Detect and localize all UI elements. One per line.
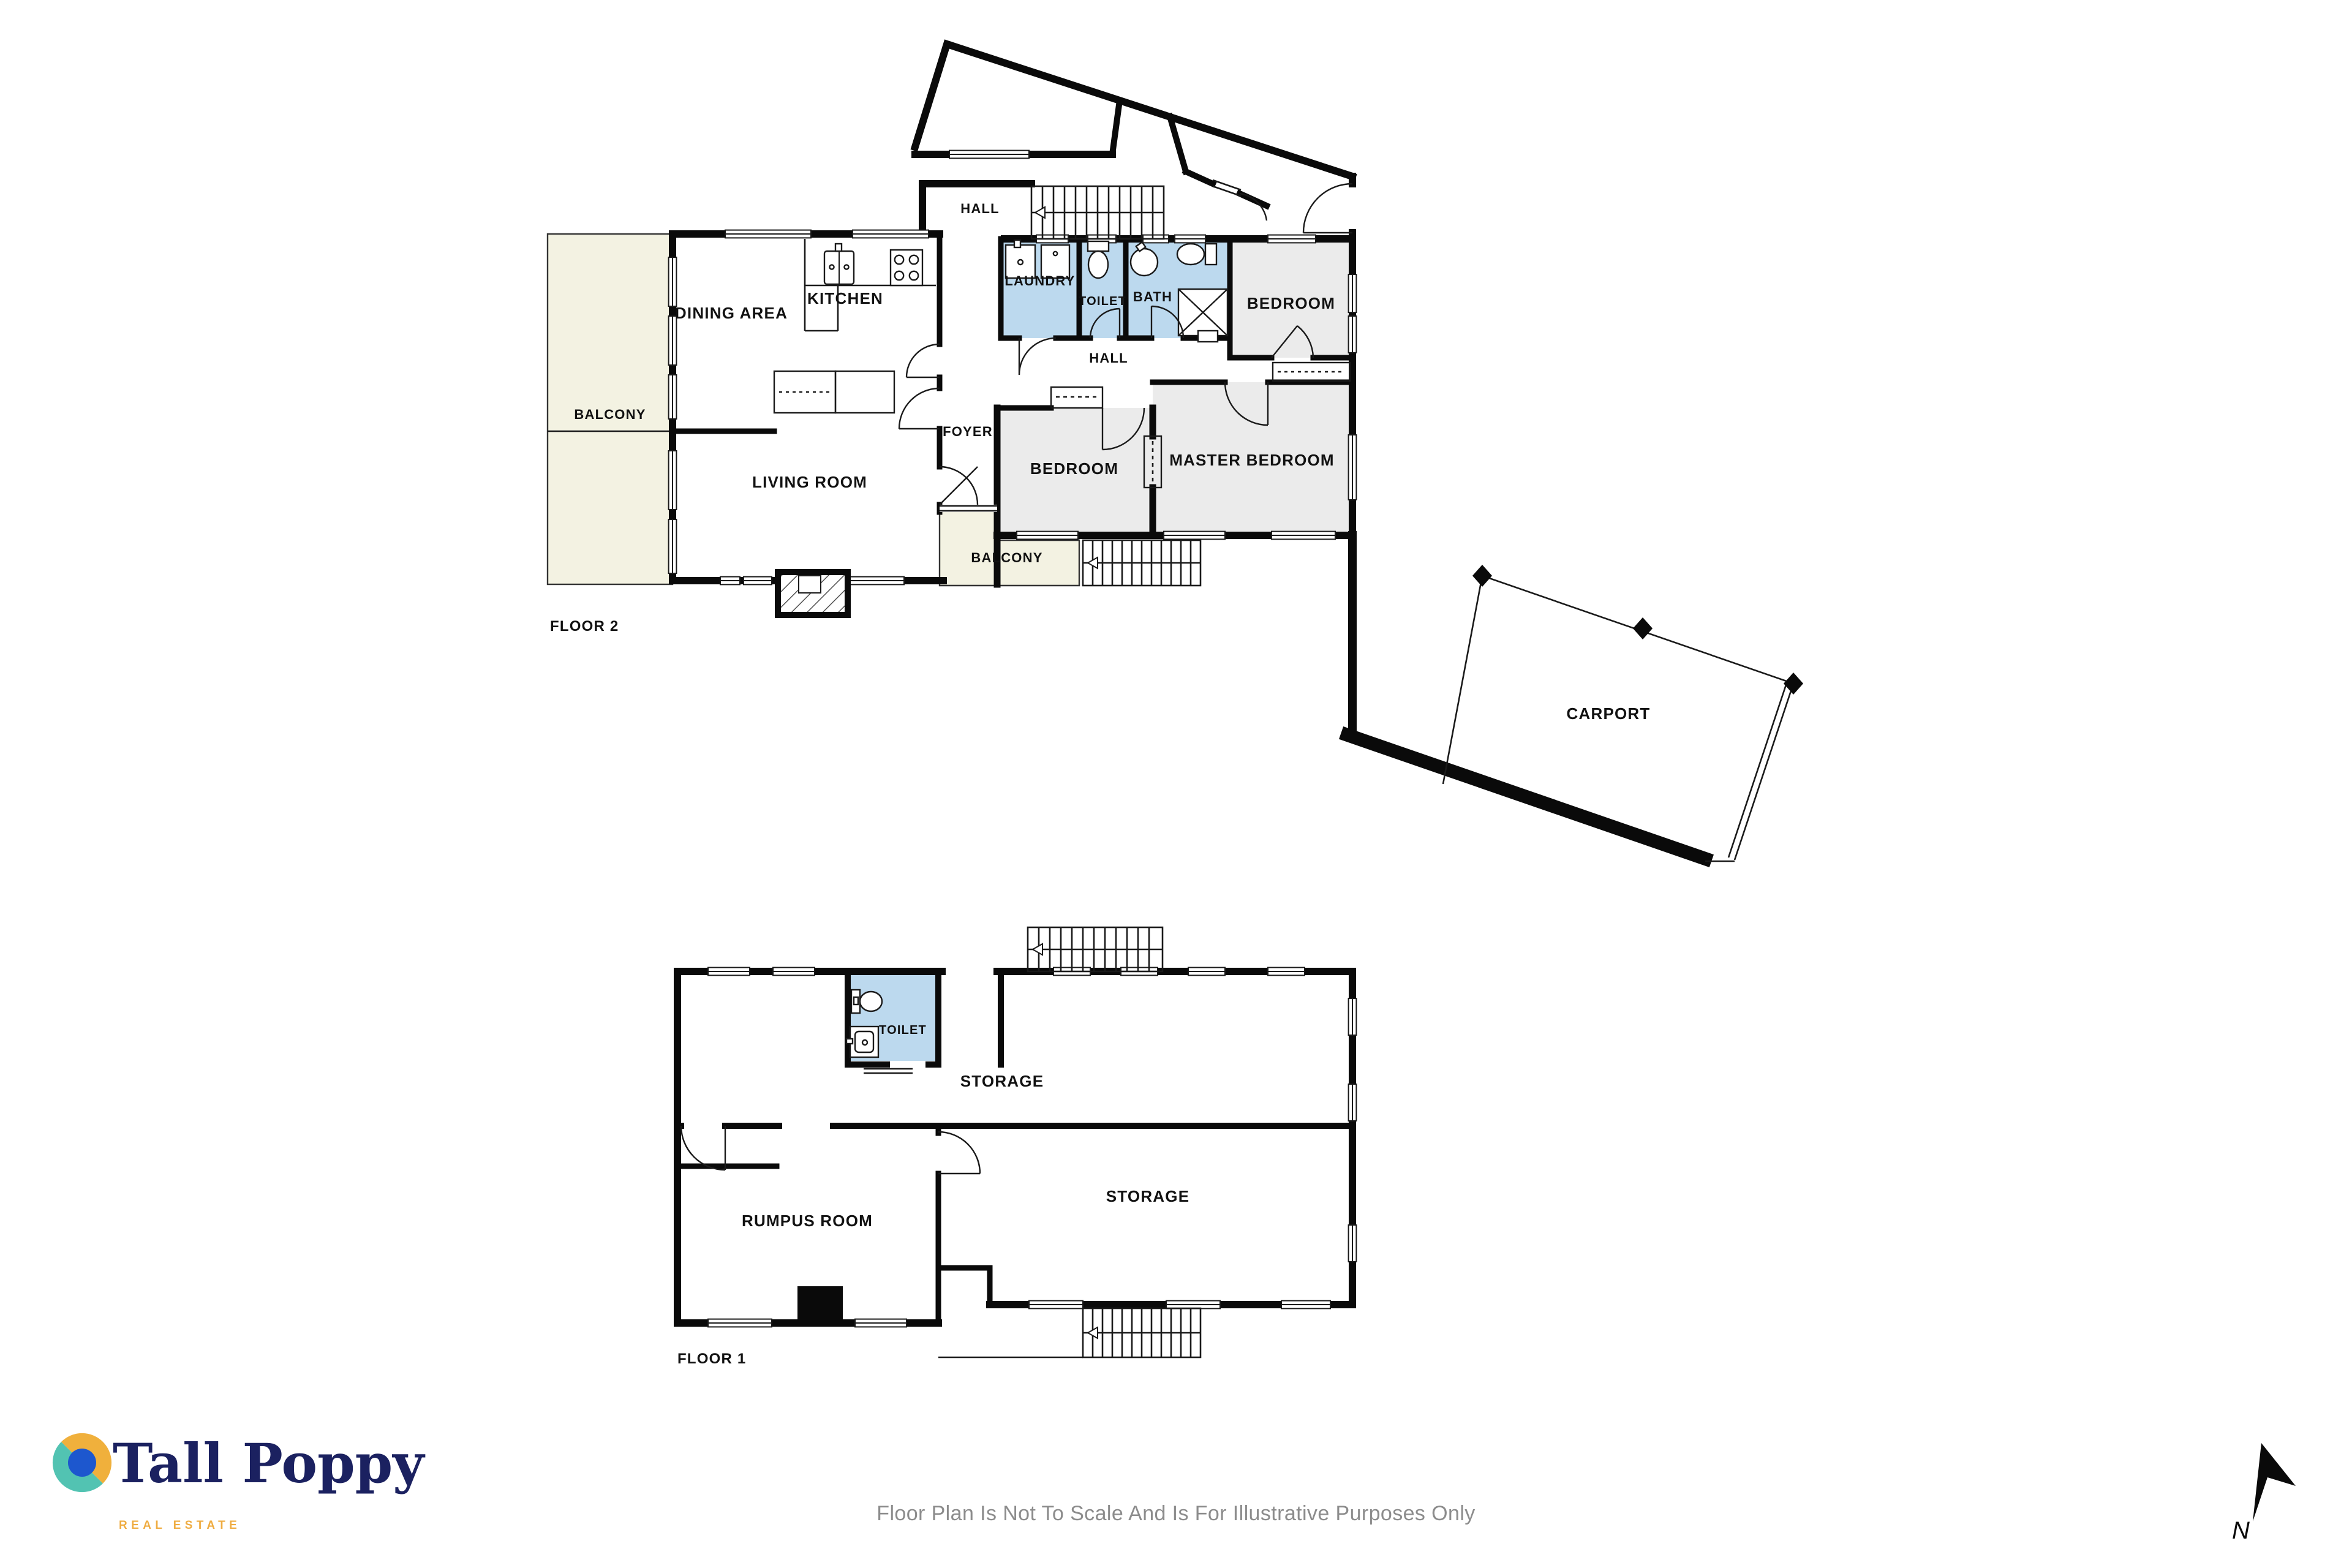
toilet-icon (1205, 244, 1216, 265)
toilet-f2-fixtures (1088, 241, 1109, 278)
label-laundry: LAUNDRY (1005, 273, 1075, 288)
label-storage-upper: STORAGE (960, 1072, 1044, 1090)
label-balcony-lower: BALCONY (971, 550, 1042, 565)
carport-post (1633, 617, 1653, 639)
logo-dot-icon (68, 1449, 96, 1477)
label-storage-lower: STORAGE (1106, 1187, 1190, 1205)
staircase-floor2-upper (1031, 186, 1164, 239)
label-rumpus: RUMPUS ROOM (742, 1212, 873, 1230)
label-bath: BATH (1133, 289, 1172, 304)
brand-tagline: REAL ESTATE (119, 1519, 241, 1532)
staircase-floor2-lower (1083, 540, 1200, 586)
carport-post (1784, 673, 1803, 695)
floor1-walls (677, 971, 1352, 1323)
label-balcony-left: BALCONY (574, 407, 646, 422)
fireplace (797, 1286, 843, 1323)
label-hall: HALL (1089, 350, 1128, 366)
brand-logo-icon (61, 1441, 104, 1484)
label-master: MASTER BEDROOM (1169, 451, 1335, 469)
floor1-plan: TOILET STORAGE RUMPUS ROOM STORAGE FLOOR… (677, 927, 1356, 1367)
small-sink-icon (1198, 331, 1218, 342)
label-bedroom-top: BEDROOM (1247, 294, 1335, 312)
north-arrow: N (2232, 1443, 2296, 1544)
kitchen-counter (774, 239, 936, 413)
label-toilet-f1: TOILET (879, 1023, 927, 1037)
label-bedroom-mid: BEDROOM (1030, 459, 1118, 478)
north-label: N (2232, 1517, 2250, 1544)
floor2-title: FLOOR 2 (550, 618, 619, 635)
label-carport: CARPORT (1567, 704, 1651, 723)
tap-icon (1014, 240, 1020, 247)
carport-post (1472, 565, 1492, 587)
brand-logo: Tall Poppy REAL ESTATE (61, 1431, 426, 1532)
label-hall-upper: HALL (960, 201, 999, 216)
stove-icon (891, 250, 922, 285)
disclaimer-text: Floor Plan Is Not To Scale And Is For Il… (876, 1502, 1475, 1525)
floor1-doors (681, 1126, 980, 1174)
toilet-icon (1088, 241, 1109, 251)
cabinet (835, 371, 894, 413)
chimney (778, 572, 848, 615)
basin-icon (1131, 249, 1158, 276)
floor2-plan: BALCONY DINING AREA KITCHEN HALL LAUNDRY… (548, 44, 1803, 861)
label-toilet-f2: TOILET (1079, 295, 1126, 308)
foyer-threshold (940, 505, 997, 512)
brand-name: Tall Poppy (113, 1431, 426, 1495)
staircase-floor1-bottom (938, 1308, 1200, 1357)
tap-icon (846, 1039, 853, 1044)
label-living: LIVING ROOM (752, 473, 867, 491)
staircase-floor1-top (1028, 927, 1163, 971)
label-kitchen: KITCHEN (807, 289, 883, 307)
label-foyer: FOYER (943, 424, 993, 439)
label-dining: DINING AREA (675, 304, 788, 322)
floorplan-page: BALCONY DINING AREA KITCHEN HALL LAUNDRY… (0, 0, 2352, 1568)
kitchen-tap-icon (835, 244, 842, 251)
floor1-title: FLOOR 1 (677, 1351, 746, 1367)
floor1-windows (708, 968, 1356, 1327)
floorplan-drawing: BALCONY DINING AREA KITCHEN HALL LAUNDRY… (0, 0, 2352, 1568)
north-arrow-icon (2253, 1443, 2296, 1521)
